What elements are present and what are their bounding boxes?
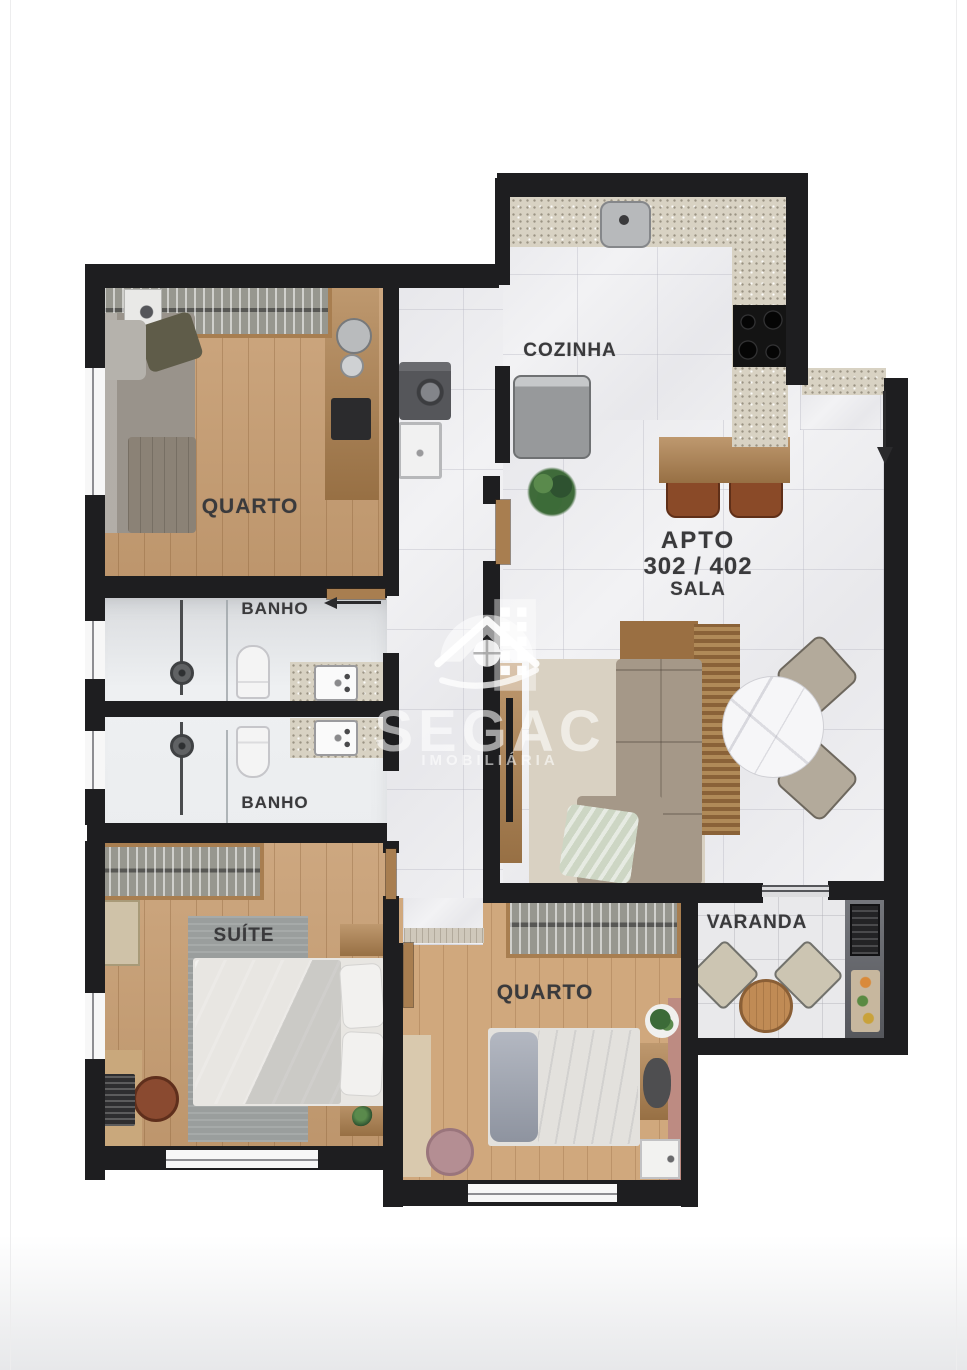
room-label-banho2: BANHO (241, 793, 308, 813)
desk-chair-suite (133, 1076, 179, 1122)
washing-machine (399, 362, 451, 420)
kitchen-sink-faucet (619, 215, 629, 225)
bathroom-arrow-head-icon (324, 597, 337, 609)
room-label-quarto1: QUARTO (202, 495, 299, 519)
room-label-sala: SALA (670, 579, 726, 601)
door-bedroom2 (404, 943, 413, 1007)
window-bedroom2 (465, 1184, 620, 1202)
suite-pillow (339, 1031, 384, 1097)
door-mat (404, 928, 484, 943)
balcony-table (739, 979, 793, 1033)
pouf-bedroom2 (426, 1128, 474, 1176)
suite-duvet (195, 960, 341, 1104)
window-bathroom1 (85, 618, 105, 682)
floor-plan-image: COZINHA APTO 302 / 402 SALA QUARTO BANHO… (0, 0, 967, 1370)
nightstand (340, 924, 384, 956)
wardrobe-suite (96, 843, 264, 900)
wall-kitchen-top (497, 173, 808, 197)
shower-head-icon (170, 661, 194, 685)
wall-right-outer (884, 378, 908, 1055)
bathroom1-sink (314, 665, 358, 701)
shower-glass (226, 730, 228, 828)
bathroom2-sink (314, 720, 358, 756)
serving-board (851, 970, 880, 1032)
wall-kitchen-right (786, 173, 808, 385)
window-suite (163, 1150, 321, 1168)
left-edge-line (10, 0, 11, 1370)
tv-bedroom1 (331, 398, 371, 440)
wall-balcony-top-right (828, 881, 908, 900)
wardrobe-bedroom2 (506, 894, 681, 958)
ottoman-throw (128, 437, 196, 533)
entry-counter (802, 368, 886, 395)
nightstand-white (640, 1139, 680, 1179)
wall-kitchen-left-lower (495, 366, 510, 463)
wall-balcony-bottom (690, 1038, 908, 1055)
cooktop-icon (733, 305, 787, 367)
plant-nightstand (352, 1106, 374, 1128)
shower-head-icon (170, 734, 194, 758)
window-suite-left (85, 990, 105, 1062)
door-hall-living (496, 500, 510, 564)
plant-kitchen (523, 464, 581, 520)
wall-suite-right (383, 896, 399, 1180)
sofa-throw-blanket (558, 803, 639, 884)
wall-bedroom2-right (681, 898, 698, 1207)
wall-bath2-bottom (87, 823, 387, 843)
room-label-suite: SUÍTE (214, 925, 275, 947)
entry-arrow-icon (883, 391, 886, 449)
room-label-varanda: VARANDA (707, 912, 808, 934)
door-suite (386, 849, 396, 899)
right-edge-line (956, 0, 957, 1370)
shower-glass (226, 600, 228, 702)
bedroom2-pillow (490, 1032, 538, 1142)
wall-living-bottom (483, 883, 763, 903)
bottom-fade (0, 1235, 967, 1370)
window-bathroom2 (85, 728, 105, 792)
toilet (236, 645, 270, 699)
room-label-quarto2: QUARTO (497, 981, 594, 1005)
wall-bedroom1-service (383, 286, 399, 596)
laptop-suite (101, 1074, 135, 1126)
plant-bedroom2 (645, 1004, 679, 1038)
entry-arrow-head-icon (877, 447, 893, 464)
wall-bath-divider (87, 701, 387, 717)
barbecue-grill-icon (850, 904, 880, 956)
dining-table (722, 676, 824, 778)
bathroom-arrow-icon (335, 601, 381, 604)
apartment-units: 302 / 402 (643, 553, 752, 581)
wall-bath-right (383, 653, 399, 771)
utility-sink (398, 422, 442, 479)
console-table (620, 621, 698, 663)
room-label-banho1: BANHO (241, 599, 308, 619)
refrigerator (513, 375, 591, 459)
balcony-sliding-door (762, 885, 829, 897)
apartment-label: APTO (661, 527, 735, 555)
toilet (236, 726, 270, 778)
suite-pillow (339, 963, 385, 1030)
pillow-gray (98, 320, 146, 380)
wall-hall-living (483, 561, 500, 885)
tv-screen (506, 698, 513, 822)
bedroom2-duvet (538, 1030, 638, 1144)
wall-bedroom1-top (87, 264, 499, 288)
room-label-cozinha: COZINHA (523, 340, 617, 362)
window-bedroom1 (85, 365, 105, 498)
dresser-mirror (643, 1058, 671, 1108)
vanity-stool (340, 354, 364, 378)
vanity-mirror (336, 318, 372, 354)
